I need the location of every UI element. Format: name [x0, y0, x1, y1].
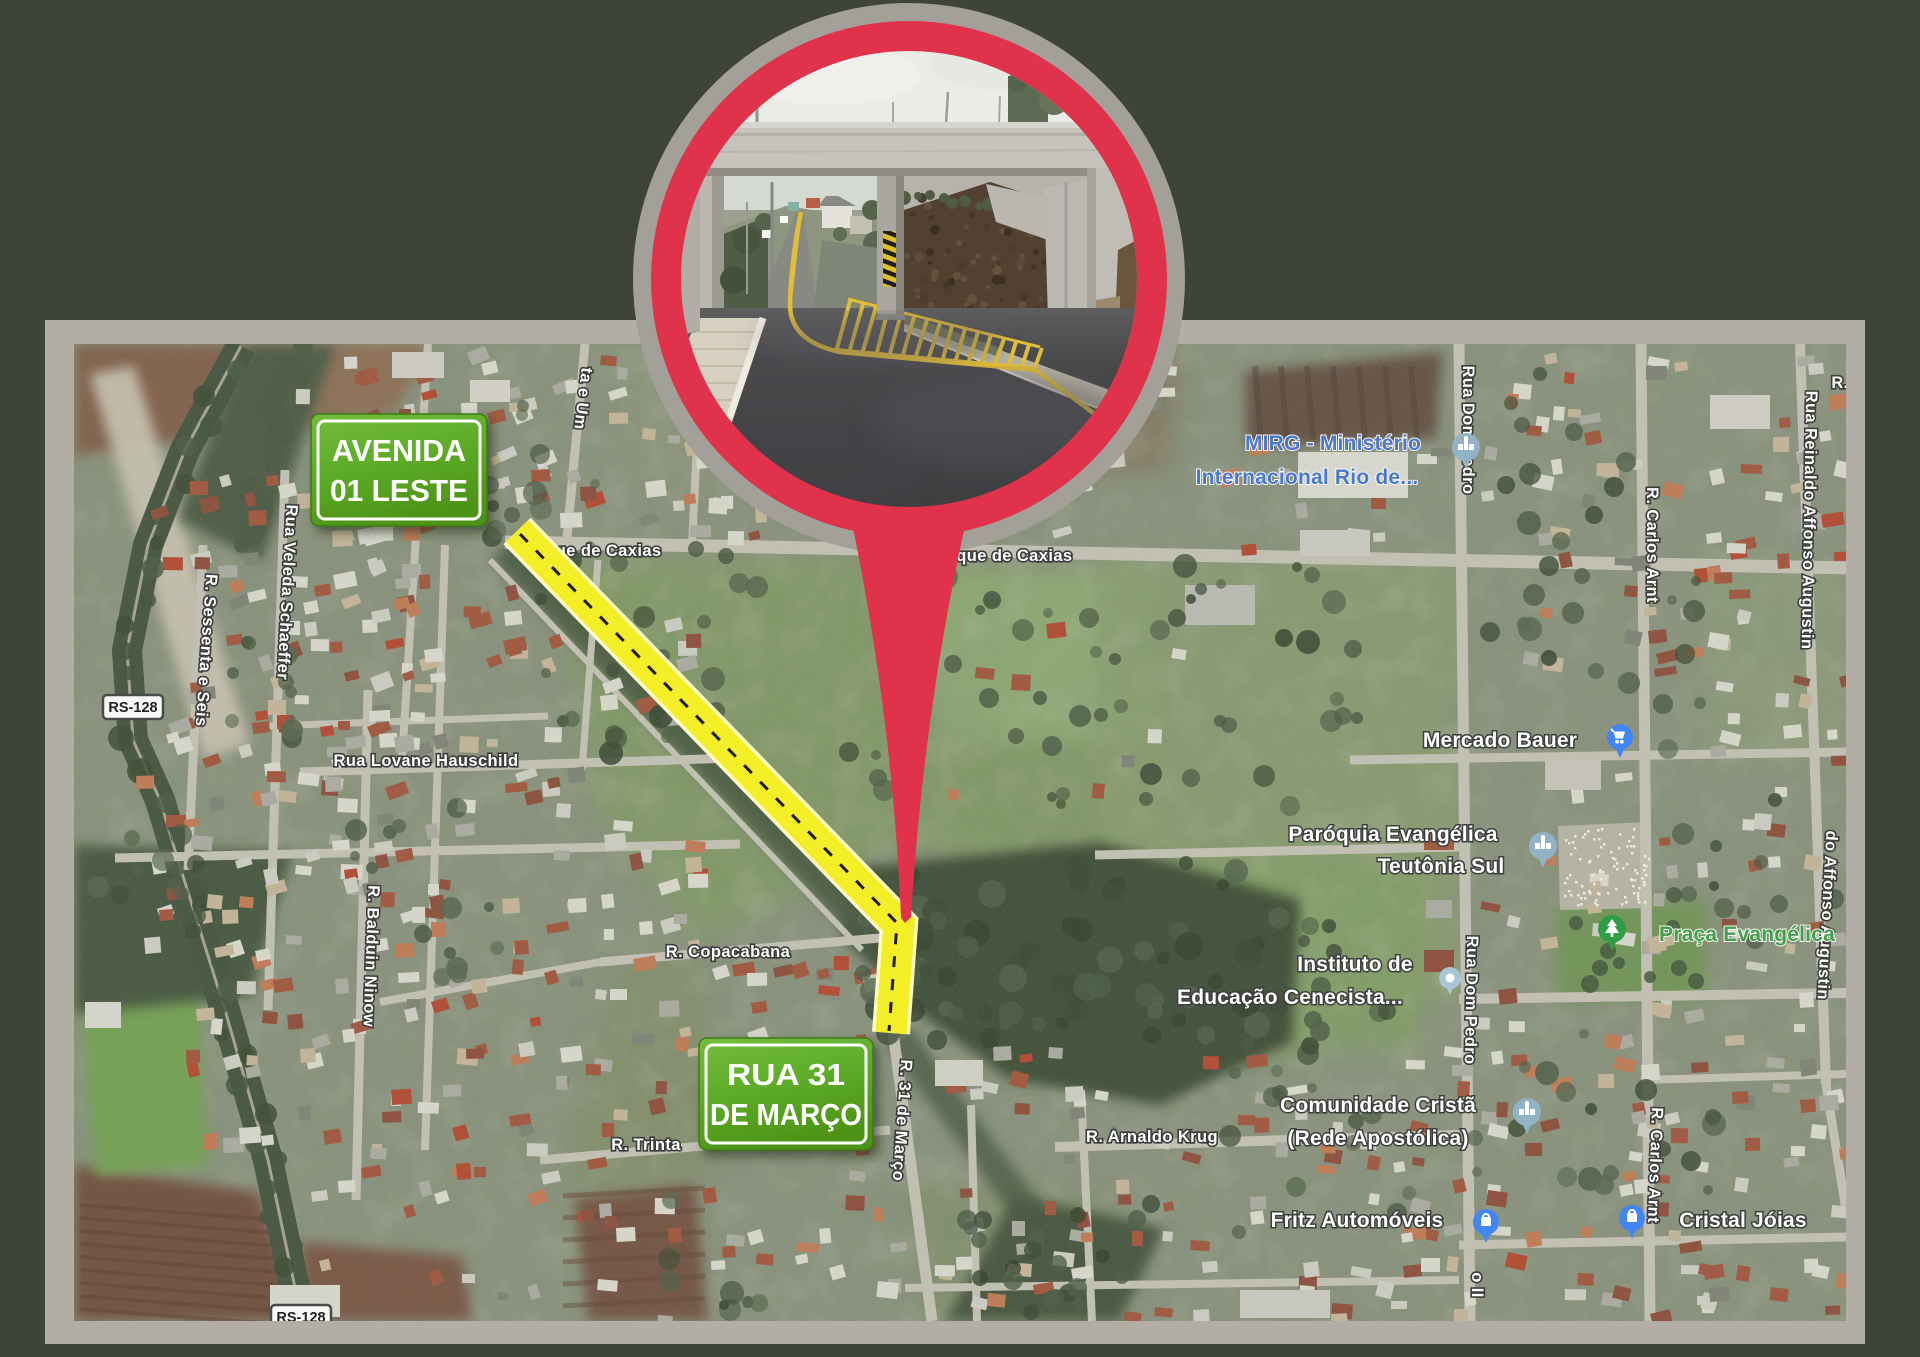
svg-text:o II: o II: [1468, 1272, 1486, 1297]
svg-text:R. Copacabana: R. Copacabana: [666, 943, 791, 961]
svg-text:Rua Lovane Hauschild: Rua Lovane Hauschild: [334, 752, 519, 770]
svg-text:Paróquia Evangélica: Paróquia Evangélica: [1288, 823, 1497, 846]
svg-text:(Rede Apostólica): (Rede Apostólica): [1287, 1127, 1468, 1150]
svg-text:Praça Evangélica: Praça Evangélica: [1659, 923, 1835, 946]
svg-text:01 LESTE: 01 LESTE: [330, 473, 468, 508]
svg-text:R. Trinta: R. Trinta: [611, 1136, 681, 1154]
svg-text:Instituto de: Instituto de: [1297, 953, 1413, 976]
svg-text:R. Carlos Arnt: R. Carlos Arnt: [1643, 487, 1661, 603]
svg-text:Internacional Rio de...: Internacional Rio de...: [1196, 466, 1419, 489]
svg-text:RUA 31: RUA 31: [727, 1057, 845, 1092]
svg-text:Fritz Automóveis: Fritz Automóveis: [1271, 1209, 1444, 1232]
svg-text:Mercado Bauer: Mercado Bauer: [1423, 729, 1577, 752]
svg-text:DE MARÇO: DE MARÇO: [710, 1097, 862, 1132]
svg-text:AVENIDA: AVENIDA: [332, 433, 466, 468]
svg-text:Teutônia Sul: Teutônia Sul: [1378, 855, 1505, 878]
svg-text:Educação Cenecista...: Educação Cenecista...: [1177, 986, 1403, 1009]
svg-text:RS-128: RS-128: [108, 700, 157, 716]
svg-text:Rua Dom Pedro: Rua Dom Pedro: [1459, 366, 1477, 495]
svg-text:MIRG - Ministério: MIRG - Ministério: [1245, 432, 1421, 455]
svg-text:Rua Dom Pedro: Rua Dom Pedro: [1461, 935, 1481, 1064]
svg-text:Comunidade Cristã: Comunidade Cristã: [1280, 1094, 1476, 1117]
svg-text:Cristal Jóias: Cristal Jóias: [1679, 1209, 1807, 1232]
svg-text:R. Arnaldo Krug: R. Arnaldo Krug: [1086, 1128, 1218, 1146]
